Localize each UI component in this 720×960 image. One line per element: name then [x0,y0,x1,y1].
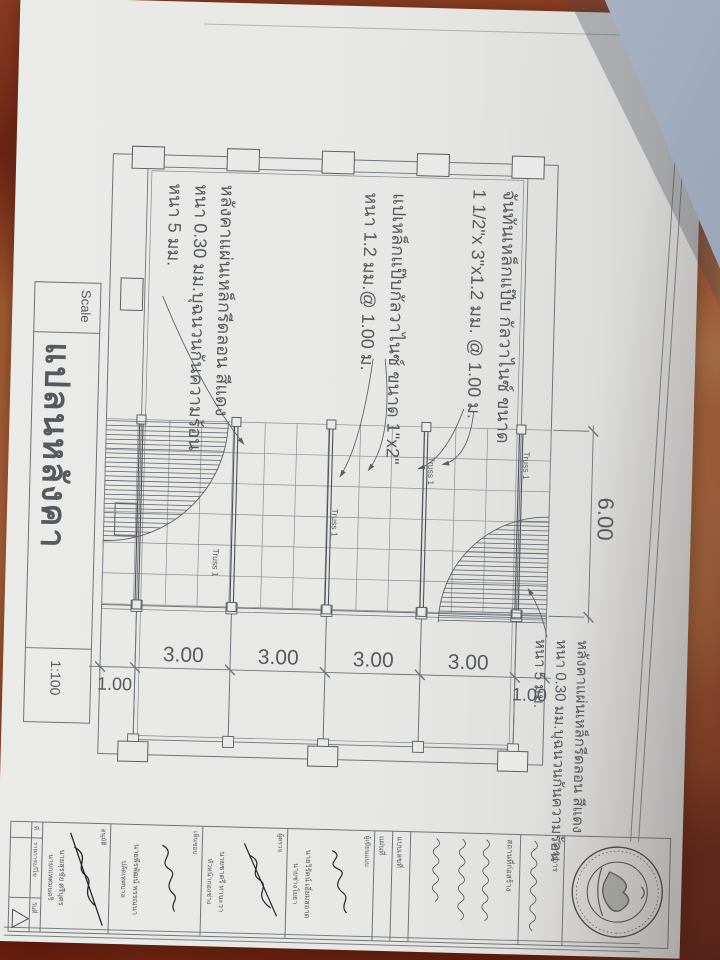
row-label: ผู้เขียนแบบ [363,835,372,866]
column-marker [132,600,141,609]
roof-framing-mesh [99,414,553,625]
column-marker [137,415,146,424]
grid-line [438,556,550,559]
grid-line [104,430,231,433]
truss-label: Truss 1 [521,451,532,480]
photo-of-roof-plan-drawing: { "sheet": { "title": "แปลนหลังคา", "sca… [0,0,720,960]
grid-line [104,439,231,442]
grid-line [437,593,549,596]
grid-line [133,609,136,739]
truss-label: Truss 1 [329,508,340,537]
grid-line [439,514,551,517]
row-role: นายช่างโยธา [291,863,301,904]
signature [243,843,279,916]
scale-label: Scale [78,290,94,323]
signature-row: อนุมัติ นายสุรชัย ศรีบุตร นายกเทศมนตรี [45,827,108,926]
revision-strip: ที่ รายการแก้ไข วันที่ [12,825,40,928]
row-name: นายสุรชัย ศรีบุตร [57,849,67,906]
purlin-note-line2: หนา 1.2 มม.@ 1.00 ม. [357,192,382,371]
official-seal-icon [571,846,663,938]
column-marker [417,607,426,616]
grid-line [103,485,230,488]
column-marker [227,602,236,611]
grid-line [438,560,550,563]
column-marker [227,149,260,172]
grid-line [323,614,326,744]
grid-line [418,617,421,747]
truss-labels: Truss 1 Truss 1 Truss 1 Truss 1 [210,443,531,585]
grid-line [438,570,550,573]
grid-line [104,444,231,447]
column-marker [412,741,423,752]
grid-line [439,533,551,536]
signature [331,851,349,913]
row-label: อนุมัติ [99,829,107,846]
drawing-no-label: แบบเลขที่ [395,836,406,868]
grid-line [103,471,230,474]
revision-triangle-icon [12,909,28,927]
column-marker [120,278,143,311]
grid-line [437,588,549,591]
row-name: นายพีรพัฒน์ พรรณนา [130,844,141,915]
drawing-sheet: Truss 1 Truss 1 Truss 1 Truss 1 6.00 3.0… [0,0,704,959]
dim-bay: 3.00 [258,646,299,670]
row-role: นายกเทศมนตรี [46,854,55,901]
column-marker [114,503,137,536]
column-marker [132,146,165,169]
bay-grid-lines [133,609,516,749]
roof-note-right-line3: หนา 5 มม. [530,639,549,709]
row-label: ผู้ตรวจ [276,833,284,852]
dim-overhang: 1.00 [97,673,133,694]
revision-col-2: รายการแก้ไข [31,842,40,877]
grid-line [103,476,230,479]
revision-col-1: ที่ [32,826,40,830]
grid-line [103,462,230,465]
grid-line [438,537,550,540]
grid-line [102,494,229,497]
roof-note-left-line2: หนา 0.30 มม.บุฉนวนกันความร้อน [184,184,212,451]
sheet-title: แปลนหลังคา [33,342,76,550]
dim-span: 6.00 [592,497,618,540]
dim-bay: 3.00 [353,648,394,672]
sheet-no-label: แผ่นที่ [377,836,388,856]
revision-col-3: วันที่ [30,902,38,914]
rafter-note-line1: จันทันเหล็กแป๊บ กัลวาไนซ์ ขนาด [493,190,522,444]
row-role: ปลัดเทศบาล [119,860,128,898]
handwritten-site-text [431,838,489,920]
grid-line [437,597,549,600]
roof-plan-drawing: Truss 1 Truss 1 Truss 1 Truss 1 6.00 3.0… [0,0,704,959]
grid-line [228,612,231,742]
row-role: หัวหน้ากองช่าง [205,858,214,904]
grid-line [437,606,549,609]
dim-bay: 3.00 [447,651,488,675]
grid-line [103,490,230,493]
row-label: เห็นชอบ [191,831,201,855]
grid-line [104,425,231,428]
signature [161,845,177,911]
roof-note-right-line2: หนา 0.30 มม.บุฉนวนกันความร้อน [546,639,570,862]
column-marker [307,746,338,767]
column-marker [512,156,545,179]
roof-note-right-line1: หลังคาแผ่นเหล็กรีดลอน สีแดง [569,640,593,834]
signature [68,833,104,926]
row-name: นายวิรัตน์ เอี่ยมสอาด [302,850,314,919]
site-label: สถานที่ก่อสร้าง [504,839,516,892]
row-name: นายชาตรี ทานะวา [217,851,228,912]
column-marker [222,736,233,747]
grid-line [438,542,550,545]
grid-line [439,524,551,527]
rafter-note-line2: 1 1/2"x 3"x1.2 มม. @ 1.00 ม. [464,189,490,419]
roof-note-left-line3: หนา 5 มม. [163,183,185,267]
grid-line [103,457,230,460]
grid-line [437,579,549,582]
column-marker [327,420,336,429]
column-marker [422,422,431,431]
grid-line [438,574,550,577]
grid-line [104,434,231,437]
column-marker [322,151,355,174]
column-marker [322,605,331,614]
roof-note-left-line1: หลังคาแผ่นเหล็กรีดลอน สีแดง [212,184,240,416]
column-marker [517,425,526,434]
dim-bay: 3.00 [163,643,204,667]
grid-line [101,536,228,539]
signature-row: เห็นชอบ นายพีรพัฒน์ พรรณนา ปลัดเทศบาล [118,829,200,917]
scale-value: 1:100 [47,660,64,696]
grid-line [438,551,550,554]
title-bar: Scale แปลนหลังคา 1:100 [24,282,101,724]
column-marker [118,741,149,762]
grid-line [437,602,549,605]
grid-line [101,540,228,543]
signature-row: ผู้เขียนแบบ นายวิรัตน์ เอี่ยมสอาด นายช่า… [290,834,371,920]
grid-line [102,499,229,502]
column-marker [497,751,528,772]
grid-line [103,467,230,470]
project-label: โครงการ [551,840,562,872]
signature-row: ผู้ตรวจ นายชาตรี ทานะวา หัวหน้ากองช่าง [205,831,285,916]
column-marker [232,417,241,426]
column-marker [417,154,450,177]
grid-line [104,453,231,456]
handwritten-project-text [529,841,537,931]
grid-line [436,620,548,623]
grid-line [438,547,550,550]
purlin-note-line1: แปเหล็กแป๊บกัลวาไนซ์ ขนาด 1"x2" [382,193,411,465]
truss-label: Truss 1 [210,548,221,577]
